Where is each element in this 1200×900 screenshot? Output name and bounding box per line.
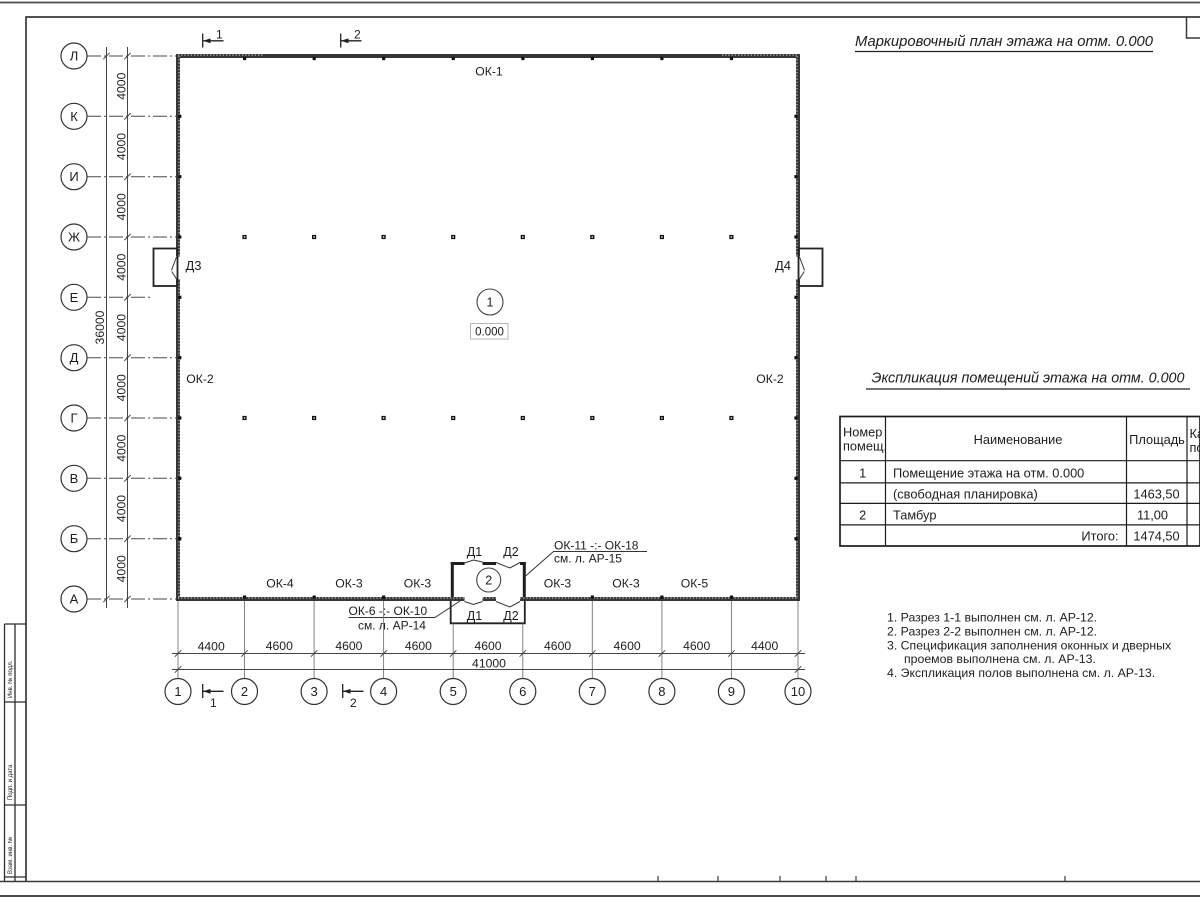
svg-text:Площадь: Площадь bbox=[1129, 432, 1185, 447]
svg-text:4400: 4400 bbox=[198, 640, 225, 654]
svg-text:ОК-3: ОК-3 bbox=[335, 576, 363, 590]
svg-text:Д3: Д3 bbox=[186, 258, 202, 273]
svg-text:Л: Л bbox=[70, 49, 79, 64]
svg-text:4600: 4600 bbox=[335, 639, 362, 653]
svg-text:ОК-11 -:- ОК-18: ОК-11 -:- ОК-18 bbox=[554, 539, 639, 553]
svg-text:К: К bbox=[70, 109, 78, 124]
svg-text:1: 1 bbox=[210, 696, 217, 710]
svg-text:1: 1 bbox=[859, 466, 866, 481]
svg-text:4000: 4000 bbox=[114, 193, 128, 220]
svg-text:4. Экспликация полов выполнена: 4. Экспликация полов выполнена см. л. АР… bbox=[887, 666, 1155, 680]
svg-text:4000: 4000 bbox=[114, 253, 128, 280]
svg-text:4600: 4600 bbox=[544, 639, 571, 653]
svg-text:4600: 4600 bbox=[474, 639, 501, 653]
svg-text:7: 7 bbox=[589, 684, 596, 699]
svg-text:А: А bbox=[70, 592, 79, 607]
svg-text:2: 2 bbox=[350, 696, 357, 710]
svg-text:4000: 4000 bbox=[114, 434, 128, 461]
svg-text:Д4: Д4 bbox=[775, 258, 791, 273]
svg-text:Е: Е bbox=[70, 290, 79, 305]
svg-text:4000: 4000 bbox=[114, 314, 128, 341]
svg-text:41000: 41000 bbox=[472, 656, 506, 670]
svg-text:1: 1 bbox=[487, 296, 494, 310]
svg-text:ОК-5: ОК-5 bbox=[681, 576, 709, 590]
svg-text:ОК-1: ОК-1 bbox=[475, 64, 503, 78]
svg-text:по: по bbox=[1190, 440, 1200, 455]
svg-text:4000: 4000 bbox=[114, 555, 128, 582]
svg-text:36000: 36000 bbox=[93, 310, 107, 344]
svg-text:Тамбур: Тамбур bbox=[893, 508, 936, 523]
svg-text:Д2: Д2 bbox=[503, 545, 518, 559]
svg-text:11,00: 11,00 bbox=[1137, 508, 1168, 523]
svg-text:1463,50: 1463,50 bbox=[1133, 487, 1179, 502]
svg-text:Помещение этажа на отм. 0.000: Помещение этажа на отм. 0.000 bbox=[893, 466, 1084, 481]
svg-text:см. л. АР-14: см. л. АР-14 bbox=[358, 619, 426, 633]
svg-text:(свободная планировка): (свободная планировка) bbox=[893, 487, 1038, 502]
svg-text:4000: 4000 bbox=[114, 133, 128, 160]
svg-text:1: 1 bbox=[216, 28, 223, 42]
svg-text:Д1: Д1 bbox=[467, 609, 482, 623]
svg-text:ОК-3: ОК-3 bbox=[404, 576, 432, 590]
svg-text:Ка: Ка bbox=[1190, 426, 1200, 441]
svg-text:Г: Г bbox=[70, 411, 77, 426]
svg-text:Д2: Д2 bbox=[503, 609, 518, 623]
svg-text:Инв. № подл.: Инв. № подл. bbox=[7, 660, 14, 698]
svg-text:Маркировочный план этажа на от: Маркировочный план этажа на отм. 0.000 bbox=[855, 34, 1154, 50]
svg-text:ОК-2: ОК-2 bbox=[186, 372, 214, 386]
svg-text:помещ.: помещ. bbox=[843, 439, 887, 454]
svg-text:проемов выполнена см. л. АР-13: проемов выполнена см. л. АР-13. bbox=[904, 652, 1096, 666]
svg-text:ОК-2: ОК-2 bbox=[756, 372, 784, 386]
svg-text:4000: 4000 bbox=[114, 495, 128, 522]
svg-text:ОК-3: ОК-3 bbox=[612, 576, 640, 590]
svg-text:2. Разрез 2-2 выполнен см. л.: 2. Разрез 2-2 выполнен см. л. АР-12. bbox=[887, 624, 1097, 638]
svg-text:2: 2 bbox=[859, 508, 866, 523]
svg-text:10: 10 bbox=[791, 684, 805, 699]
svg-text:В: В bbox=[70, 471, 79, 486]
svg-text:1. Разрез 1-1 выполнен см. л.: 1. Разрез 1-1 выполнен см. л. АР-12. bbox=[887, 611, 1097, 625]
svg-text:3: 3 bbox=[310, 684, 317, 699]
svg-text:Итого:: Итого: bbox=[1081, 529, 1118, 544]
svg-text:1: 1 bbox=[174, 684, 181, 699]
svg-text:4000: 4000 bbox=[114, 72, 128, 99]
svg-text:4600: 4600 bbox=[683, 639, 710, 653]
svg-text:4600: 4600 bbox=[266, 639, 293, 653]
svg-text:Б: Б bbox=[70, 531, 79, 546]
svg-text:Д1: Д1 bbox=[467, 545, 482, 559]
svg-text:8: 8 bbox=[658, 684, 665, 699]
svg-text:И: И bbox=[69, 169, 78, 184]
svg-text:Экспликация помещений этажа на: Экспликация помещений этажа на отм. 0.00… bbox=[872, 371, 1185, 387]
svg-text:Д: Д bbox=[70, 350, 79, 365]
svg-text:4600: 4600 bbox=[614, 639, 641, 653]
svg-text:4600: 4600 bbox=[405, 639, 432, 653]
svg-text:см. л. АР-15: см. л. АР-15 bbox=[554, 552, 622, 566]
svg-text:Номер: Номер bbox=[843, 425, 882, 440]
svg-text:ОК-4: ОК-4 bbox=[266, 576, 294, 590]
svg-text:ОК-6 -:- ОК-10: ОК-6 -:- ОК-10 bbox=[349, 604, 428, 618]
svg-text:4: 4 bbox=[380, 684, 387, 699]
svg-text:Подп. и дата: Подп. и дата bbox=[8, 764, 14, 800]
svg-text:Взам. инв. №: Взам. инв. № bbox=[7, 837, 14, 874]
svg-text:2: 2 bbox=[485, 574, 492, 588]
svg-text:6: 6 bbox=[519, 684, 526, 699]
svg-text:4400: 4400 bbox=[751, 639, 778, 653]
svg-text:2: 2 bbox=[241, 684, 248, 699]
svg-text:3. Спецификация заполнения око: 3. Спецификация заполнения оконных и две… bbox=[887, 638, 1172, 652]
svg-text:ОК-3: ОК-3 bbox=[544, 576, 572, 590]
svg-text:0.000: 0.000 bbox=[475, 327, 504, 339]
svg-text:4000: 4000 bbox=[114, 374, 128, 401]
svg-text:Наименование: Наименование bbox=[974, 432, 1063, 447]
svg-text:9: 9 bbox=[728, 684, 735, 699]
svg-text:Ж: Ж bbox=[68, 230, 80, 245]
svg-text:5: 5 bbox=[450, 684, 457, 699]
svg-text:1474,50: 1474,50 bbox=[1133, 529, 1179, 544]
svg-text:2: 2 bbox=[354, 28, 361, 42]
